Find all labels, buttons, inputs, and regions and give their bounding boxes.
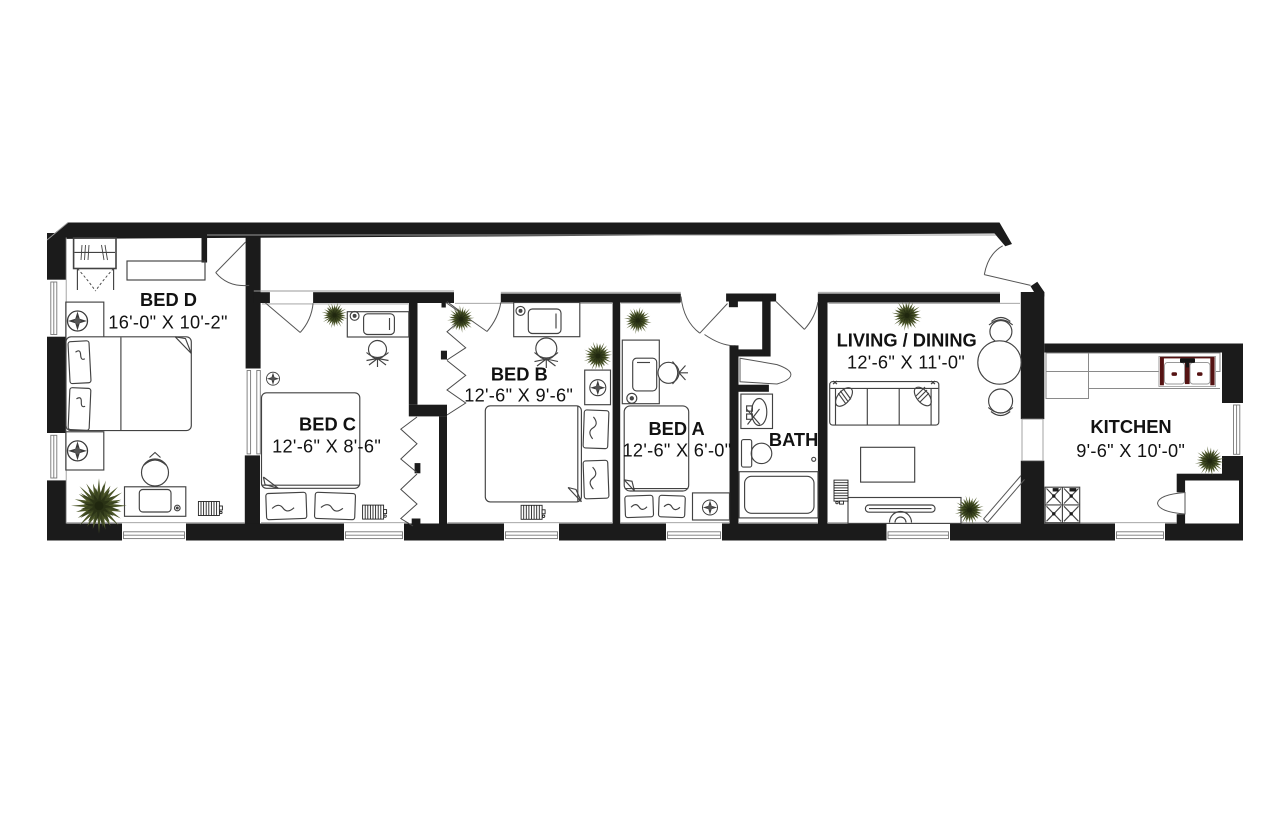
svg-text:BED B: BED B	[491, 364, 548, 385]
svg-text:16'-0" X 10'-2": 16'-0" X 10'-2"	[108, 313, 227, 333]
svg-text:9'-6" X 10'-0": 9'-6" X 10'-0"	[1076, 441, 1185, 461]
svg-text:LIVING / DINING: LIVING / DINING	[837, 329, 977, 350]
svg-text:12'-6" X 11'-0": 12'-6" X 11'-0"	[847, 353, 965, 373]
svg-text:BED D: BED D	[140, 289, 197, 310]
svg-text:BED C: BED C	[299, 414, 356, 435]
svg-text:12'-6" X 8'-6": 12'-6" X 8'-6"	[272, 437, 381, 457]
svg-text:12'-6" X 9'-6": 12'-6" X 9'-6"	[464, 385, 573, 405]
svg-text:BED A: BED A	[648, 418, 704, 439]
svg-text:BATH: BATH	[769, 429, 818, 450]
svg-text:KITCHEN: KITCHEN	[1090, 416, 1171, 437]
svg-text:12'-6" X 6'-0": 12'-6" X 6'-0"	[623, 440, 732, 460]
